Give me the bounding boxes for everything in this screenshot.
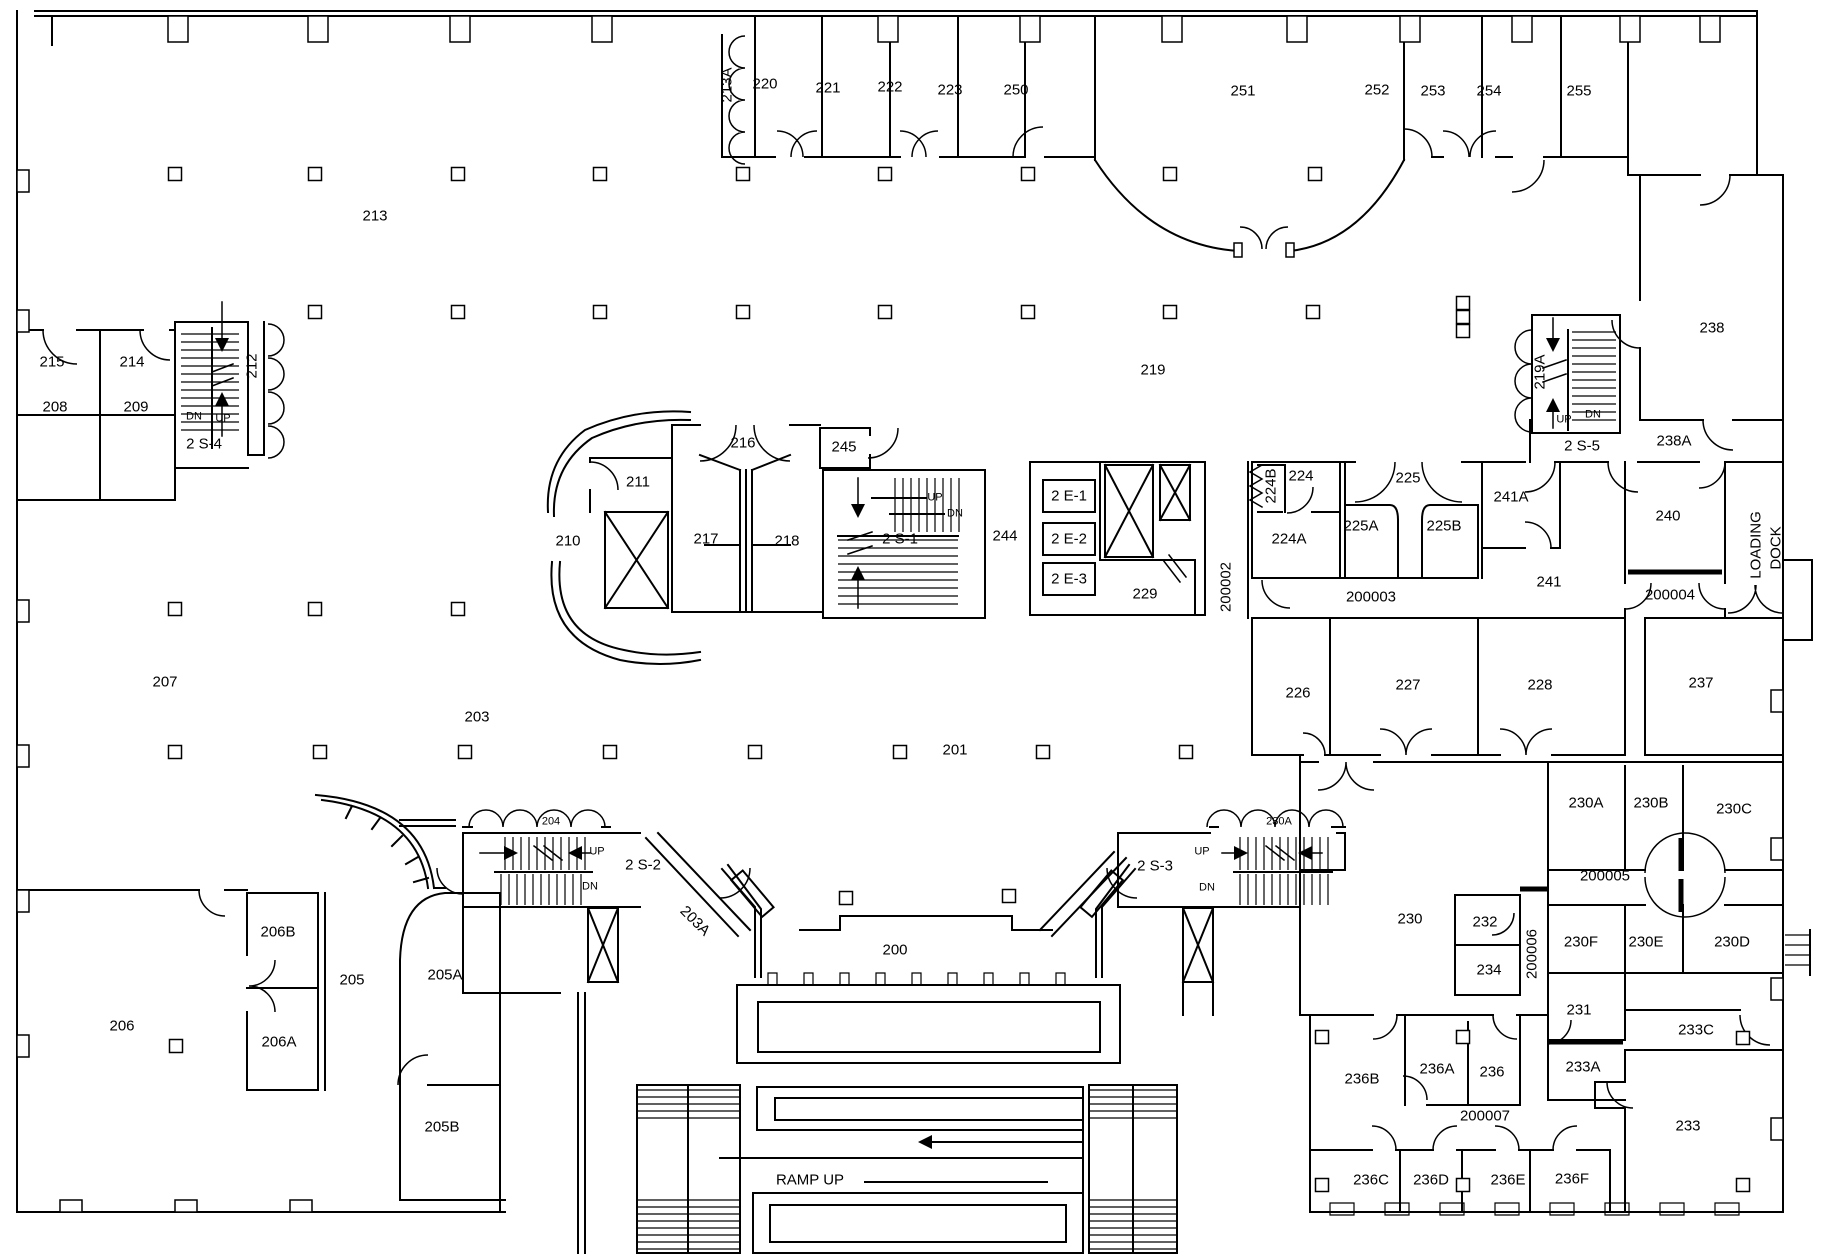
room-label-255: 255 [1566, 84, 1591, 99]
stair-treads [181, 332, 1811, 1249]
room-label-230a: 230A [1568, 796, 1603, 811]
room-label-213: 213 [362, 209, 387, 224]
thick-sills [1520, 572, 1722, 1042]
room-label-2-s-3: 2 S-3 [1137, 859, 1173, 874]
room-label-233c: 233C [1678, 1023, 1714, 1038]
room-label-230d: 230D [1714, 935, 1750, 950]
room-label-254: 254 [1476, 84, 1501, 99]
lower-left-walls [17, 795, 505, 1212]
room-label-212: 212 [245, 353, 260, 378]
room-label-loading: LOADING [1749, 511, 1764, 579]
room-label-dn: DN [186, 412, 202, 423]
room-label-225: 225 [1395, 471, 1420, 486]
room-label-dock: DOCK [1769, 526, 1784, 569]
stair-direction-arrows [215, 338, 1560, 1149]
door-arcs [43, 36, 1783, 1150]
room-label-224: 224 [1288, 469, 1313, 484]
room-label-225b: 225B [1426, 519, 1461, 534]
room-label-236d: 236D [1413, 1173, 1449, 1188]
right-core-walls [1252, 175, 1812, 975]
room-label-237: 237 [1688, 676, 1713, 691]
room-label-209: 209 [123, 400, 148, 415]
room-label-dn: DN [1199, 883, 1215, 894]
room-label-219a: 219A [1533, 354, 1548, 389]
room-label-200004: 200004 [1645, 588, 1695, 603]
room-label-dn: DN [947, 509, 963, 520]
door-notch-left [1234, 243, 1242, 257]
room-label-214: 214 [119, 355, 144, 370]
room-label-236f: 236F [1555, 1172, 1589, 1187]
room-label-222: 222 [877, 80, 902, 95]
room-label-252: 252 [1364, 83, 1389, 98]
room-label-216: 216 [730, 436, 755, 451]
room-label-245: 245 [831, 440, 856, 455]
room-label-ramp-up: RAMP UP [776, 1173, 844, 1188]
room-label-200003: 200003 [1346, 590, 1396, 605]
room-label-213a: 213A [720, 67, 735, 102]
room-label-236c: 236C [1353, 1173, 1389, 1188]
floor-plan-drawing [0, 0, 1827, 1256]
room-label-224b: 224B [1264, 468, 1279, 503]
room-label-238a: 238A [1656, 434, 1691, 449]
room-label-229: 229 [1132, 587, 1157, 602]
room-label-236b: 236B [1344, 1072, 1379, 1087]
room-label-230e: 230E [1628, 935, 1663, 950]
room-label-200: 200 [882, 943, 907, 958]
room-label-217: 217 [693, 532, 718, 547]
room-label-208: 208 [42, 400, 67, 415]
room-label-203: 203 [464, 710, 489, 725]
room-label-200005: 200005 [1580, 869, 1630, 884]
room-label-236: 236 [1479, 1065, 1504, 1080]
room-label-250: 250 [1003, 83, 1028, 98]
room-label-2-s-1: 2 S-1 [882, 532, 918, 547]
room-label-up: UP [1194, 847, 1209, 858]
room-label-200006: 200006 [1525, 929, 1540, 979]
room-label-219: 219 [1140, 363, 1165, 378]
room-label-204: 204 [542, 817, 560, 828]
room-label-2-e-1: 2 E-1 [1051, 489, 1087, 504]
room-label-233a: 233A [1565, 1060, 1600, 1075]
room-label-205: 205 [339, 973, 364, 988]
room-label-244: 244 [992, 529, 1017, 544]
room-label-230f: 230F [1564, 935, 1598, 950]
room-label-up: UP [215, 414, 230, 425]
room-label-240: 240 [1655, 509, 1680, 524]
top-rooms-walls [722, 16, 1757, 251]
room-label-dn: DN [582, 882, 598, 893]
room-label-226: 226 [1285, 686, 1310, 701]
room-label-206a: 206A [261, 1035, 296, 1050]
room-label-201: 201 [942, 743, 967, 758]
room-label-230: 230 [1397, 912, 1422, 927]
room-label-2-s-4: 2 S-4 [186, 437, 222, 452]
room-label-210: 210 [555, 534, 580, 549]
room-label-230b: 230B [1633, 796, 1668, 811]
room-label-241: 241 [1536, 575, 1561, 590]
room-label-241a: 241A [1493, 490, 1528, 505]
room-label-dn: DN [1585, 410, 1601, 421]
room-label-211: 211 [626, 475, 650, 490]
room-label-2-e-3: 2 E-3 [1051, 572, 1087, 587]
room-label-220: 220 [752, 77, 777, 92]
room-label-206: 206 [109, 1019, 134, 1034]
room-label-206b: 206B [260, 925, 295, 940]
room-label-233: 233 [1675, 1119, 1700, 1134]
room-label-2-s-5: 2 S-5 [1564, 439, 1600, 454]
room-label-200007: 200007 [1460, 1109, 1510, 1124]
room-label-234: 234 [1476, 963, 1501, 978]
lower-right-walls [1300, 755, 1783, 1212]
door-notch-right [1286, 243, 1294, 257]
room-label-228: 228 [1527, 678, 1552, 693]
room-label-221: 221 [815, 81, 840, 96]
room-label-225a: 225A [1343, 519, 1378, 534]
room-label-218: 218 [774, 534, 799, 549]
room-label-232: 232 [1472, 915, 1497, 930]
room-label-205b: 205B [424, 1120, 459, 1135]
room-label-up: UP [1556, 415, 1571, 426]
room-label-238: 238 [1699, 321, 1724, 336]
room-label-2-e-2: 2 E-2 [1051, 532, 1087, 547]
room-label-230c: 230C [1716, 802, 1752, 817]
floor-plan: 213A220221222223250251252253254255213238… [0, 0, 1827, 1256]
room-label-227: 227 [1395, 678, 1420, 693]
room-label-224a: 224A [1271, 532, 1306, 547]
room-label-205a: 205A [427, 968, 462, 983]
room-label-up: UP [589, 847, 604, 858]
room-label-236a: 236A [1419, 1062, 1454, 1077]
room-label-207: 207 [152, 675, 177, 690]
misc-detail-lines [212, 302, 1566, 860]
room-label-215: 215 [39, 355, 64, 370]
room-label-223: 223 [937, 83, 962, 98]
room-label-230a: 230A [1266, 817, 1292, 828]
room-label-253: 253 [1420, 84, 1445, 99]
room-label-251: 251 [1230, 84, 1255, 99]
room-label-236e: 236E [1490, 1173, 1525, 1188]
room-label-up: UP [927, 493, 942, 504]
room-label-200002: 200002 [1219, 562, 1234, 612]
room-label-231: 231 [1566, 1003, 1591, 1018]
room-label-2-s-2: 2 S-2 [625, 858, 661, 873]
